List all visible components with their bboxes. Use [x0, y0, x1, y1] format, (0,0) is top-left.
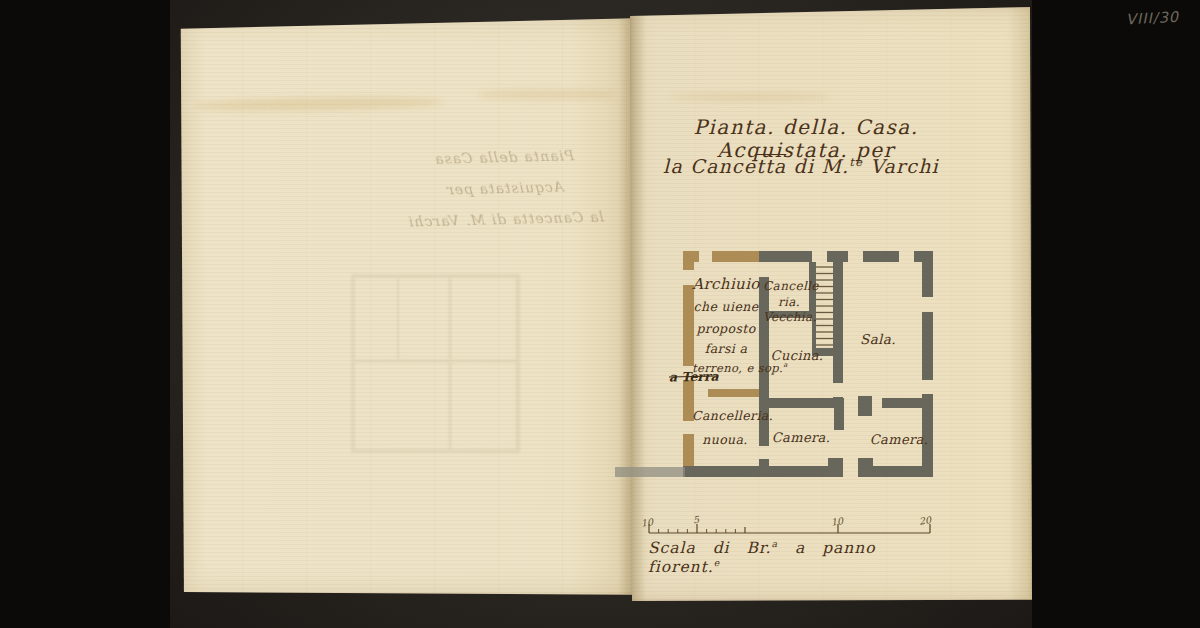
room-label-cancelleria-nuova: Cancelleria. nuoua. [692, 409, 758, 448]
room-label-line: ria. [763, 295, 815, 311]
scale-tick-label: 10 [640, 516, 654, 529]
title-fragment: Varchi [863, 155, 939, 177]
room-label-line: Cancelle [763, 279, 815, 295]
title-fragment-abbrev: tta [756, 155, 786, 177]
shelfmark-annotation: VIII/30 [1126, 9, 1180, 28]
title-superscript: te [849, 155, 863, 169]
scale-caption-superscript: e [714, 557, 721, 568]
room-label-line: Cancelleria. [692, 409, 758, 423]
scale-caption: Scala di Br.a a panno fiorent.e [648, 539, 948, 577]
room-label-archivio: Archiuio che uiene proposto farsi a terr… [692, 276, 760, 376]
room-label-sala: Sala. [852, 332, 904, 348]
left-page: Pianta della Casa Acquistata per la Canc… [178, 16, 634, 596]
bleedthrough-title-line2: la Cancetta di M. Varchi [406, 201, 607, 237]
archival-scan: Pianta della Casa Acquistata per la Canc… [0, 0, 1200, 628]
room-label-camera-right: Camera. [868, 433, 930, 448]
bleedthrough-title: Pianta della Casa Acquistata per la Canc… [405, 139, 607, 237]
room-label-camera-mid: Camera. [768, 431, 834, 446]
room-label-line: proposto [692, 322, 760, 336]
paper-stain [478, 90, 618, 99]
paper-stain [670, 93, 830, 101]
title-fragment: la Cance [663, 155, 756, 177]
paper-stain [193, 96, 443, 112]
scale-tick-label: 10 [830, 515, 844, 528]
title-fragment: di M. [786, 155, 849, 177]
room-label-line: che uiene [692, 300, 760, 314]
room-label-line: Archiuio [692, 276, 760, 293]
street-band [615, 467, 685, 477]
room-label-cancelleria-vecchia: Cancelle ria. Vecchia. [763, 279, 815, 326]
bleedthrough-plan [338, 261, 548, 471]
room-label-terra-struck: a Terra [669, 370, 719, 385]
drawing-title-line2: la Cancetta di M.te Varchi [630, 156, 972, 178]
room-label-line: nuoua. [692, 433, 758, 447]
room-label-line: farsi a [692, 342, 760, 356]
bleedthrough-title-line1: Pianta della Casa Acquistata per [405, 139, 607, 206]
scale-caption-fragment: Scala di Br. [648, 539, 772, 557]
room-label-cucina: Cucina. [766, 349, 828, 364]
room-label-line: Vecchia. [763, 310, 815, 326]
scale-tick-label: 20 [918, 514, 932, 527]
